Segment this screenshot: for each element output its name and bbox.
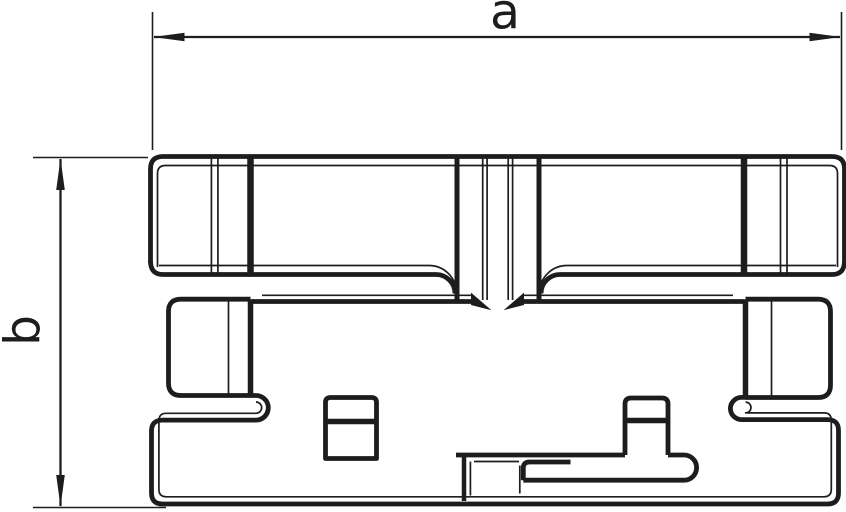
latch-step bbox=[523, 462, 570, 480]
top-rail-inner-bottom-right bbox=[540, 266, 837, 294]
left-tab-outline bbox=[169, 299, 251, 395]
top-rail-inner-line bbox=[158, 166, 838, 268]
part-cross-section-drawing: a b bbox=[0, 0, 846, 512]
band-tip-right bbox=[504, 293, 525, 311]
dimension-a: a bbox=[153, 0, 842, 150]
arrowhead-up-icon bbox=[56, 159, 65, 191]
band-tip-left bbox=[471, 293, 492, 311]
left-latch-block bbox=[326, 398, 377, 459]
middle-band bbox=[252, 293, 744, 311]
center-latch-assembly bbox=[456, 398, 697, 501]
base-plate bbox=[152, 396, 839, 505]
arrowhead-left-icon bbox=[153, 33, 185, 42]
left-tab bbox=[169, 299, 251, 395]
top-rail-outline bbox=[151, 157, 845, 264]
arrowhead-right-icon bbox=[810, 33, 842, 42]
arrowhead-down-icon bbox=[56, 475, 65, 507]
right-tab-outline bbox=[746, 299, 831, 397]
right-tab bbox=[746, 299, 831, 397]
latch-block-outline bbox=[326, 398, 377, 459]
technical-drawing-canvas: a b bbox=[0, 0, 846, 512]
latch-tab-outline bbox=[625, 398, 668, 455]
latch-end-cap bbox=[523, 455, 696, 480]
top-rail-inner-bottom-left bbox=[159, 266, 457, 294]
dimension-a-label: a bbox=[490, 0, 520, 41]
dimension-b-label: b bbox=[0, 315, 52, 346]
dimension-b: b bbox=[0, 158, 166, 508]
base-outline bbox=[152, 396, 839, 505]
top-rail-profile bbox=[151, 157, 845, 302]
